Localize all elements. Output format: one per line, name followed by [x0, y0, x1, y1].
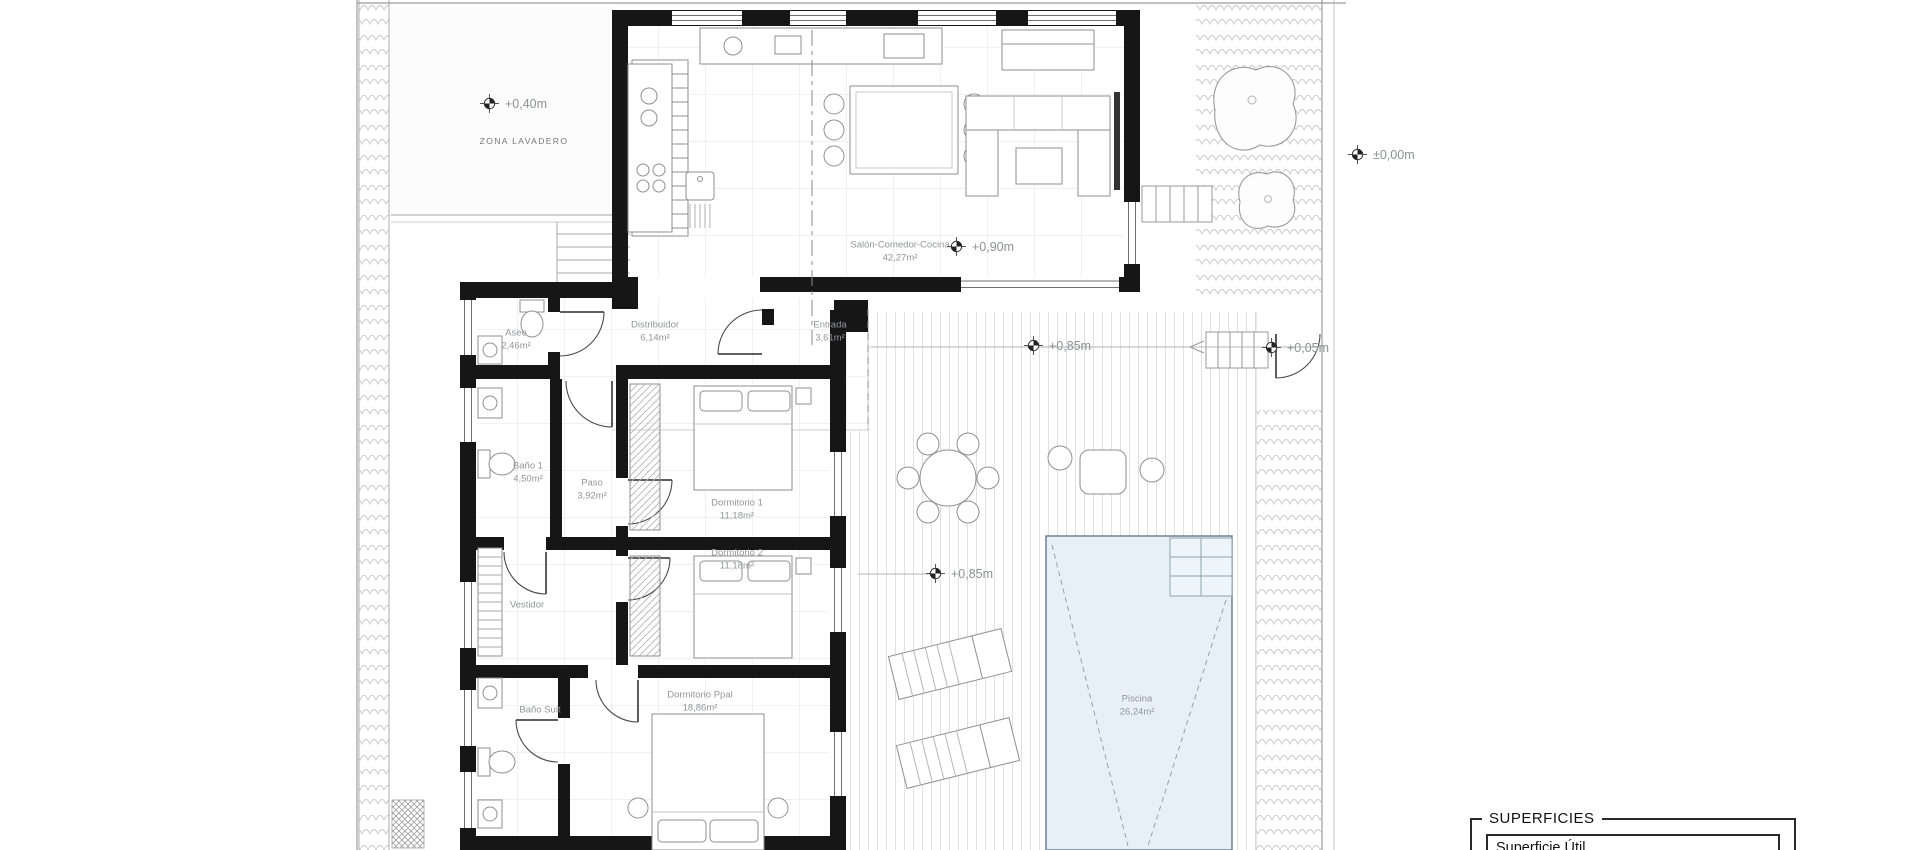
tv-unit [1114, 92, 1120, 190]
round-table [920, 450, 976, 506]
level-marker: ±0,00m [1348, 145, 1415, 164]
room-area: 26,24m² [1120, 706, 1155, 719]
room-name: Baño 1 [513, 460, 543, 473]
room-name: Vestidor [510, 598, 544, 611]
tree-symbol [1239, 172, 1295, 228]
room-label-entrada: Entrada 3,61m² [813, 319, 846, 346]
side-table [1080, 450, 1126, 494]
level-value: ±0,00m [1373, 148, 1415, 162]
zona-lavadero-label: ZONA LAVADERO [480, 136, 569, 146]
room-label-paso: Paso 3,92m² [577, 477, 607, 504]
toilet [478, 450, 490, 478]
room-label-bano1: Baño 1 4,50m² [513, 460, 543, 487]
level-marker-icon [1348, 145, 1367, 164]
room-name: Piscina [1120, 693, 1155, 706]
room-area: 11,18m² [711, 560, 763, 573]
level-marker-icon [1262, 338, 1281, 357]
superficies-title: SUPERFICIES [1482, 810, 1602, 827]
level-marker: +0,90m [947, 237, 1014, 256]
level-marker: +0,05m [1262, 338, 1329, 357]
superficies-row: Superficie Útil [1486, 834, 1780, 850]
room-area: 4,50m² [513, 473, 543, 486]
level-marker-icon [1024, 336, 1043, 355]
room-label-distribuidor: Distribuidor 6,14m² [631, 319, 679, 346]
room-area: 18,86m² [667, 702, 732, 715]
level-marker: +0,85m [1024, 336, 1091, 355]
superficies-panel: SUPERFICIES Superficie Útil [1470, 818, 1796, 850]
room-name: Dormitorio 1 [711, 497, 763, 510]
room-label-dormitorio1: Dormitorio 1 11,18m² [711, 497, 763, 524]
room-area: 6,14m² [631, 332, 679, 345]
garden-top-right [1196, 0, 1322, 302]
wardrobe [630, 384, 660, 530]
room-name: Entrada [813, 319, 846, 332]
toilet [520, 300, 544, 312]
room-label-aseo: Aseo 2,46m² [501, 327, 531, 354]
chaise [1002, 30, 1094, 70]
level-marker-icon [480, 94, 499, 113]
level-marker-icon [947, 237, 966, 256]
room-label-salon: Salón-Comedor-Cocina 42,27m² [850, 239, 949, 266]
level-value: +0,85m [1049, 339, 1091, 353]
level-value: +0,40m [505, 97, 547, 111]
garden-right-strip [1256, 410, 1322, 850]
room-area: 3,61m² [813, 332, 846, 345]
room-name: Dormitorio 2 [711, 547, 763, 560]
room-area: 11,18m² [711, 510, 763, 523]
level-value: +0,85m [951, 567, 993, 581]
room-name: Dormitorio Ppal [667, 689, 732, 702]
toilet [478, 748, 490, 776]
room-name: Baño Suit [519, 703, 560, 716]
sofa [966, 96, 1110, 130]
tree-symbol [1214, 67, 1296, 150]
level-value: +0,90m [972, 240, 1014, 254]
room-area: 3,92m² [577, 490, 607, 503]
room-area: 2,46m² [501, 340, 531, 353]
room-label-piscina: Piscina 26,24m² [1120, 693, 1155, 720]
laundry-zone [391, 4, 612, 222]
room-area: 42,27m² [850, 252, 949, 265]
wardrobe [630, 556, 660, 656]
room-name: Salón-Comedor-Cocina [850, 239, 949, 252]
room-name: Paso [577, 477, 607, 490]
level-marker: +0,40m [480, 94, 547, 113]
room-label-dormitorio-ppal: Dormitorio Ppal 18,86m² [667, 689, 732, 716]
room-name: Aseo [501, 327, 531, 340]
level-marker: +0,85m [926, 564, 993, 583]
coffee-table [1016, 148, 1062, 184]
room-label-bano-suit: Baño Suit [519, 703, 560, 716]
room-label-vestidor: Vestidor [510, 598, 544, 611]
room-label-dormitorio2: Dormitorio 2 11,18m² [711, 547, 763, 574]
floor-plan-svg [0, 0, 1920, 850]
room-name: Distribuidor [631, 319, 679, 332]
floor-plan-canvas: ZONA LAVADERO Salón-Comedor-Cocina 42,27… [0, 0, 1920, 850]
level-value: +0,05m [1287, 341, 1329, 355]
level-marker-icon [926, 564, 945, 583]
